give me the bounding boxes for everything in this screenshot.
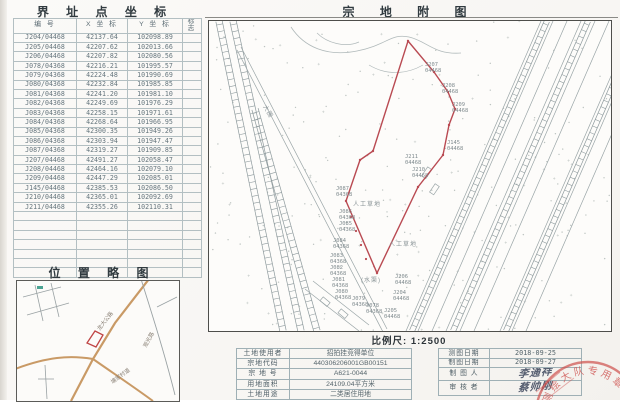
table-cell: 42319.27 — [77, 146, 128, 155]
table-row: J078/0436842216.21101995.57 — [14, 61, 202, 70]
attribute-cell: 24109.04平方米 — [290, 379, 412, 389]
table-cell — [183, 61, 202, 70]
table-cell — [183, 155, 202, 164]
table-cell: J086/04368 — [14, 136, 77, 145]
drafting-cell: 测图日期 — [439, 349, 490, 359]
table-cell — [183, 118, 202, 127]
table-cell: 101990.69 — [128, 71, 183, 80]
table-cell: J207/04468 — [14, 155, 77, 164]
table-row: J211/0446842355.26102110.31 — [14, 202, 202, 211]
title-underline — [205, 17, 618, 18]
attribute-cell: 土地使用者 — [237, 349, 290, 359]
table-cell: 42224.48 — [77, 71, 128, 80]
parcel-map-canvas: J20704468J20804468J20904468J14504468J211… — [208, 20, 612, 332]
attribute-cell: 二类居住用地 — [290, 389, 412, 399]
table-cell — [77, 212, 128, 221]
table-cell — [14, 249, 77, 258]
table-cell: J210/04468 — [14, 193, 77, 202]
table-cell: 42207.62 — [77, 42, 128, 51]
table-cell — [128, 221, 183, 230]
table-row — [14, 230, 202, 239]
table-row: J084/0436842268.64101966.95 — [14, 118, 202, 127]
table-cell: 42207.82 — [77, 52, 128, 61]
table-cell: 101981.10 — [128, 89, 183, 98]
scanned-parcel-map-sheet: { "left_panel": { "table_title": "界 址 点 … — [0, 0, 620, 400]
table-cell: J079/04368 — [14, 71, 77, 80]
location-sketch-map: 龙大公路观光路塘家村道 — [16, 280, 180, 402]
table-cell — [128, 230, 183, 239]
table-cell — [183, 127, 202, 136]
table-cell: 102098.89 — [128, 33, 183, 42]
attribute-cell: 宗地代码 — [237, 359, 290, 369]
signature: 蔡帅刚 — [518, 381, 553, 395]
boundary-coordinates-table: 编 号X 坐 标Y 坐 标标 志 J204/0446842137.6410209… — [13, 18, 202, 278]
table-row: J087/0436842319.27101909.85 — [14, 146, 202, 155]
column-header: 标 志 — [183, 19, 202, 34]
drafting-cell: 制图日期 — [439, 358, 490, 368]
table-row: J079/0436842224.48101990.69 — [14, 71, 202, 80]
table-cell: 42303.94 — [77, 136, 128, 145]
table-row: J204/0446842137.64102098.89 — [14, 33, 202, 42]
table-cell — [77, 249, 128, 258]
table-cell: 102086.50 — [128, 183, 183, 192]
table-cell: J084/04368 — [14, 118, 77, 127]
table-cell: J205/04468 — [14, 42, 77, 51]
table-cell: 101966.95 — [128, 118, 183, 127]
table-cell — [14, 240, 77, 249]
table-row: J207/0446842491.27102058.47 — [14, 155, 202, 164]
table-cell: 101949.26 — [128, 127, 183, 136]
attribute-cell: 土地用途 — [237, 389, 290, 399]
table-cell — [77, 230, 128, 239]
table-cell — [183, 183, 202, 192]
table-row: J083/0436842258.15101971.61 — [14, 108, 202, 117]
table-cell: 102058.47 — [128, 155, 183, 164]
column-header: Y 坐 标 — [128, 19, 183, 34]
table-row: J210/0446842365.01102092.69 — [14, 193, 202, 202]
table-cell: J083/04368 — [14, 108, 77, 117]
table-cell: 42232.84 — [77, 80, 128, 89]
table-cell — [183, 52, 202, 61]
drafting-cell: 李通祥 — [490, 368, 582, 381]
table-cell: 101985.85 — [128, 80, 183, 89]
boundary-table-header: 编 号X 坐 标Y 坐 标标 志 — [14, 19, 202, 34]
table-cell — [183, 33, 202, 42]
drafting-cell: 审 核 者 — [439, 381, 490, 396]
table-cell: 102110.31 — [128, 202, 183, 211]
attribute-cell: 招拍挂竞得单位 — [290, 349, 412, 359]
scan-edge-shadow — [0, 0, 7, 400]
table-cell — [183, 80, 202, 89]
table-row: J145/0446842385.53102086.50 — [14, 183, 202, 192]
table-cell: 102085.01 — [128, 174, 183, 183]
table-row: J205/0446842207.62102013.66 — [14, 42, 202, 51]
column-header: 编 号 — [14, 19, 77, 34]
table-row — [14, 221, 202, 230]
table-cell — [183, 71, 202, 80]
table-cell: 102013.66 — [128, 42, 183, 51]
parcel-attributes-table: 土地使用者招拍挂竞得单位宗地代码440306206001GB00151宗 地 号… — [236, 348, 412, 400]
drafting-info-table: 测图日期2018-09-25制图日期2018-09-27制 图 人李通祥审 核 … — [438, 348, 582, 396]
table-cell — [14, 212, 77, 221]
signature: 李通祥 — [518, 368, 553, 381]
table-cell: 42268.64 — [77, 118, 128, 127]
table-cell: 42447.29 — [77, 174, 128, 183]
table-cell: J080/04368 — [14, 80, 77, 89]
table-cell — [183, 230, 202, 239]
drafting-cell: 蔡帅刚 — [490, 381, 582, 396]
table-cell: 101995.57 — [128, 61, 183, 70]
drafting-cell: 2018-09-25 — [490, 349, 582, 359]
table-cell: J208/04468 — [14, 165, 77, 174]
table-cell: 42216.21 — [77, 61, 128, 70]
table-row: J086/0436842303.94101947.47 — [14, 136, 202, 145]
column-header: X 坐 标 — [77, 19, 128, 34]
table-cell: 42137.64 — [77, 33, 128, 42]
table-cell: 42249.69 — [77, 99, 128, 108]
table-cell: 102092.69 — [128, 193, 183, 202]
table-row: J208/0446842464.16102079.10 — [14, 165, 202, 174]
location-sketch-title: 位 置 略 图 — [14, 264, 190, 281]
drafting-row: 审 核 者蔡帅刚 — [439, 381, 582, 396]
drafting-row: 制图日期2018-09-27 — [439, 358, 582, 368]
table-cell — [77, 221, 128, 230]
table-cell: 42300.35 — [77, 127, 128, 136]
table-row: J085/0436842300.35101949.26 — [14, 127, 202, 136]
table-row — [14, 212, 202, 221]
table-cell — [183, 136, 202, 145]
table-row: J081/0436842241.20101981.10 — [14, 89, 202, 98]
table-cell — [183, 202, 202, 211]
table-cell: 101971.61 — [128, 108, 183, 117]
table-cell — [183, 99, 202, 108]
table-cell: 102080.56 — [128, 52, 183, 61]
table-row: J082/0436842249.69101976.29 — [14, 99, 202, 108]
table-cell — [183, 221, 202, 230]
table-row: J080/0436842232.84101985.85 — [14, 80, 202, 89]
table-cell: J078/04368 — [14, 61, 77, 70]
table-cell — [128, 212, 183, 221]
table-cell: 42258.15 — [77, 108, 128, 117]
table-cell — [183, 146, 202, 155]
table-cell — [77, 240, 128, 249]
table-cell: 42385.53 — [77, 183, 128, 192]
drafting-row: 测图日期2018-09-25 — [439, 349, 582, 359]
table-cell — [183, 212, 202, 221]
table-cell: 102079.10 — [128, 165, 183, 174]
table-cell: 42365.01 — [77, 193, 128, 202]
attribute-cell: A621-0044 — [290, 369, 412, 379]
table-cell: 42464.16 — [77, 165, 128, 174]
sketch-roads-drawing — [17, 281, 179, 401]
table-cell: 101947.47 — [128, 136, 183, 145]
attribute-row: 土地用途二类居住用地 — [237, 389, 412, 399]
attribute-cell: 用地面积 — [237, 379, 290, 389]
table-cell — [183, 89, 202, 98]
table-cell: 101976.29 — [128, 99, 183, 108]
table-cell: J082/04368 — [14, 99, 77, 108]
table-cell — [183, 42, 202, 51]
table-cell — [183, 240, 202, 249]
attribute-row: 土地使用者招拍挂竞得单位 — [237, 349, 412, 359]
table-row — [14, 240, 202, 249]
table-row — [14, 249, 202, 258]
table-cell — [183, 193, 202, 202]
table-cell — [183, 108, 202, 117]
table-cell: J206/04468 — [14, 52, 77, 61]
table-cell: J081/04368 — [14, 89, 77, 98]
attribute-cell: 宗 地 号 — [237, 369, 290, 379]
table-cell — [128, 249, 183, 258]
table-cell — [183, 249, 202, 258]
table-cell — [128, 240, 183, 249]
drafting-cell: 制 图 人 — [439, 368, 490, 381]
attribute-row: 宗地代码440306206001GB00151 — [237, 359, 412, 369]
attribute-cell: 440306206001GB00151 — [290, 359, 412, 369]
table-cell: 42491.27 — [77, 155, 128, 164]
table-cell: J209/04468 — [14, 174, 77, 183]
attribute-row: 用地面积24109.04平方米 — [237, 379, 412, 389]
table-cell: J211/04468 — [14, 202, 77, 211]
table-cell: J204/04468 — [14, 33, 77, 42]
table-cell — [183, 174, 202, 183]
table-cell: 42241.20 — [77, 89, 128, 98]
table-cell — [183, 165, 202, 174]
table-cell: 42355.26 — [77, 202, 128, 211]
scale-label: 比例尺: 1:2500 — [208, 333, 610, 347]
table-row: J206/0446842207.82102080.56 — [14, 52, 202, 61]
drafting-row: 制 图 人李通祥 — [439, 368, 582, 381]
table-cell — [14, 230, 77, 239]
table-cell — [14, 221, 77, 230]
table-row: J209/0446842447.29102085.01 — [14, 174, 202, 183]
table-cell: J087/04368 — [14, 146, 77, 155]
table-cell: J085/04368 — [14, 127, 77, 136]
table-cell: J145/04468 — [14, 183, 77, 192]
attribute-row: 宗 地 号A621-0044 — [237, 369, 412, 379]
table-cell: 101909.85 — [128, 146, 183, 155]
parcel-map-drawing — [209, 21, 611, 331]
drafting-cell: 2018-09-27 — [490, 358, 582, 368]
